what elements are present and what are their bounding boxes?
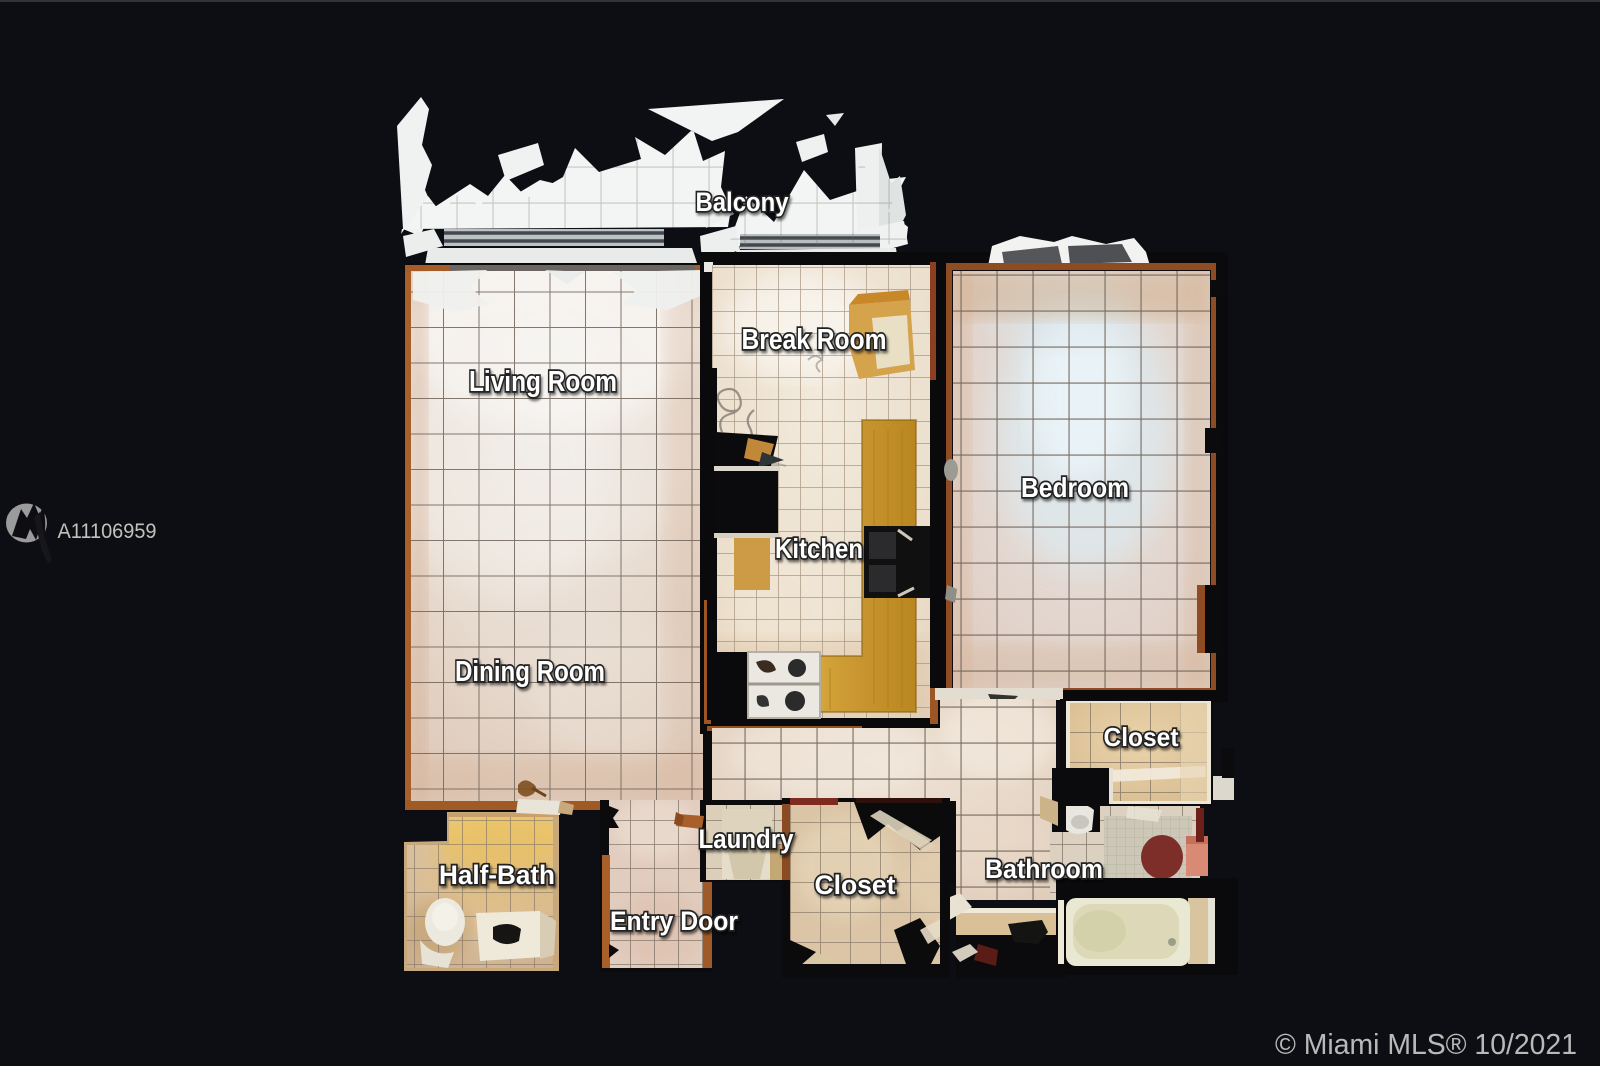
svg-text:Dining Room: Dining Room xyxy=(455,656,605,688)
svg-text:Half-Bath: Half-Bath xyxy=(439,860,555,890)
svg-text:A11106959: A11106959 xyxy=(58,520,157,543)
svg-text:Closet: Closet xyxy=(1104,722,1179,752)
svg-text:Bathroom: Bathroom xyxy=(985,854,1103,884)
svg-text:Break Room: Break Room xyxy=(742,324,887,356)
svg-text:© Miami MLS® 10/2021: © Miami MLS® 10/2021 xyxy=(1275,1029,1577,1061)
svg-text:Entry Door: Entry Door xyxy=(610,906,738,936)
svg-text:Laundry: Laundry xyxy=(699,824,794,854)
svg-text:Bedroom: Bedroom xyxy=(1021,472,1129,503)
svg-text:Living Room: Living Room xyxy=(469,366,617,398)
svg-text:Balcony: Balcony xyxy=(696,187,789,217)
svg-text:Closet: Closet xyxy=(815,870,896,900)
svg-text:Kitchen: Kitchen xyxy=(775,533,863,564)
